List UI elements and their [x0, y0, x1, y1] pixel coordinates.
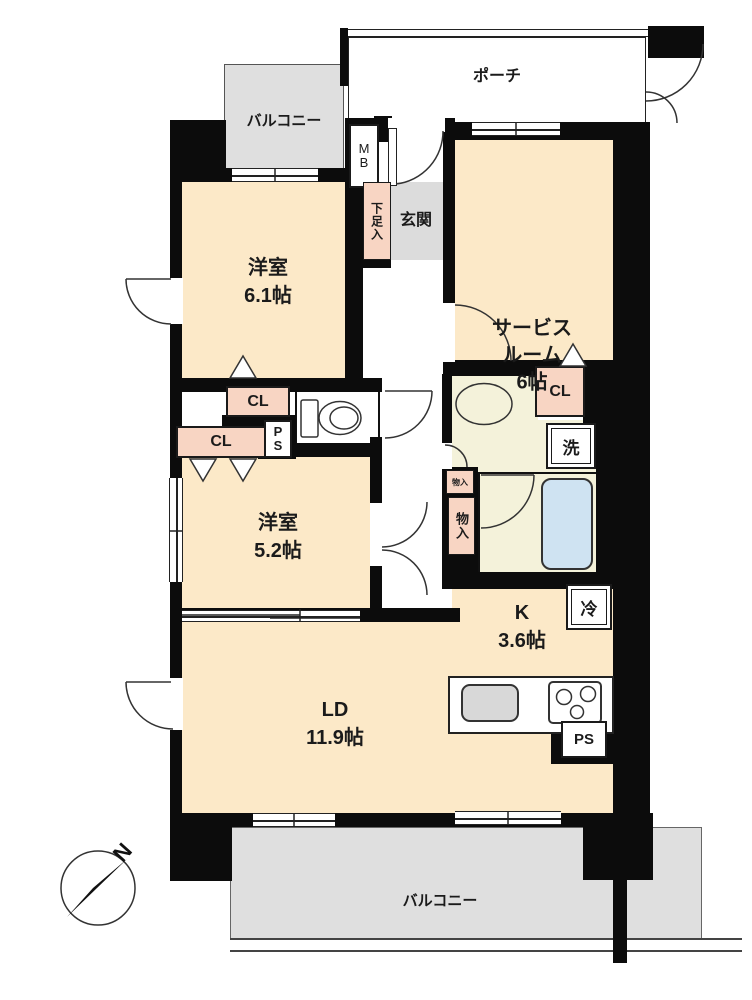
toilet-room — [295, 390, 380, 445]
wall — [370, 566, 382, 610]
storage-small: 物入 — [446, 470, 474, 494]
storage-small-label: 物入 — [452, 477, 468, 488]
window-opening — [169, 678, 183, 730]
service-room-name: サービス — [492, 316, 572, 343]
kitchen-label: K 3.6帖 — [498, 599, 546, 655]
living-dining-size: 11.9帖 — [306, 724, 364, 752]
wall — [370, 437, 382, 503]
refrigerator-space: 冷 — [566, 584, 612, 630]
balcony-edge-line — [230, 938, 742, 940]
storage: 物入 — [448, 497, 475, 555]
door-opening — [442, 443, 452, 469]
pipe-space-2: PS — [561, 721, 607, 758]
window — [232, 168, 318, 182]
laundry-space: 洗 — [546, 423, 596, 469]
living-dining-name: LD — [306, 696, 364, 724]
closet-label: CL — [210, 433, 231, 451]
meter-box-label: MB — [357, 142, 372, 170]
porch-parapet — [348, 29, 660, 37]
bedroom1-label: 洋室 6.1帖 — [244, 254, 292, 310]
shoe-cabinet-label: 下足入 — [369, 202, 386, 241]
storage-label: 物入 — [452, 512, 471, 540]
bedroom1-size: 6.1帖 — [244, 282, 292, 310]
wall — [648, 26, 704, 58]
bedroom2-name: 洋室 — [254, 509, 302, 537]
wall — [340, 28, 348, 86]
bathtub — [541, 478, 593, 570]
wall — [170, 120, 226, 174]
balcony-text: バルコニー — [247, 113, 322, 130]
pipe-space-label: PS — [574, 731, 594, 748]
service-room-name: ルーム — [492, 343, 572, 370]
balcony-top-label: バルコニー — [247, 111, 322, 132]
compass-circle — [61, 851, 135, 925]
pipe-space-1: PS — [264, 420, 292, 458]
kitchen-size: 3.6帖 — [498, 627, 546, 655]
compass-n-label: N — [108, 838, 137, 867]
door-arc-porch — [646, 92, 677, 123]
laundry-label: 洗 — [563, 434, 580, 459]
window — [455, 811, 561, 825]
closet-1: CL — [226, 386, 290, 417]
pipe-space-label: PS — [271, 425, 286, 453]
window — [253, 813, 335, 827]
sliding-door — [182, 610, 360, 622]
bedroom2-label: 洋室 5.2帖 — [254, 509, 302, 565]
service-room-size: 6帖 — [492, 370, 572, 397]
living-dining-label: LD 11.9帖 — [306, 696, 364, 752]
porch-label: ポーチ — [473, 66, 521, 88]
window — [472, 122, 560, 136]
compass-needle — [67, 859, 127, 917]
entrance-label: 玄関 — [400, 210, 432, 232]
window-opening — [169, 278, 183, 324]
balcony-bottom-label: バルコニー — [403, 891, 478, 912]
window-arc — [126, 279, 171, 324]
bedroom2-size: 5.2帖 — [254, 537, 302, 565]
kitchen-sink — [461, 684, 519, 722]
bedroom1-name: 洋室 — [244, 254, 292, 282]
porch-text: ポーチ — [473, 68, 521, 85]
closet-label: CL — [247, 393, 268, 411]
wall — [613, 827, 627, 963]
entrance-door-leaf — [388, 128, 397, 186]
window — [169, 478, 183, 582]
door-arc-entrance — [396, 131, 443, 184]
wall — [613, 140, 650, 827]
wall — [596, 417, 615, 574]
wall — [170, 813, 650, 827]
shoe-cabinet: 下足入 — [363, 182, 391, 260]
compass: N — [61, 838, 137, 925]
closet-2: CL — [176, 426, 266, 458]
window-arc — [126, 682, 173, 729]
refrigerator-label: 冷 — [581, 595, 598, 620]
floor-plan: MB 下足入 CL CL CL PS 物入 物入 洗 冷 PS — [0, 0, 752, 1000]
kitchen-name: K — [498, 599, 546, 627]
wall — [170, 813, 232, 881]
meter-box: MB — [349, 124, 379, 188]
entrance-text: 玄関 — [400, 212, 432, 229]
stove — [548, 681, 602, 724]
balcony-text: バルコニー — [403, 893, 478, 910]
hallway — [363, 266, 443, 392]
door-opening — [443, 303, 455, 362]
service-room-label: サービス ルーム 6帖 — [492, 316, 572, 397]
balcony-edge-line — [230, 950, 742, 952]
